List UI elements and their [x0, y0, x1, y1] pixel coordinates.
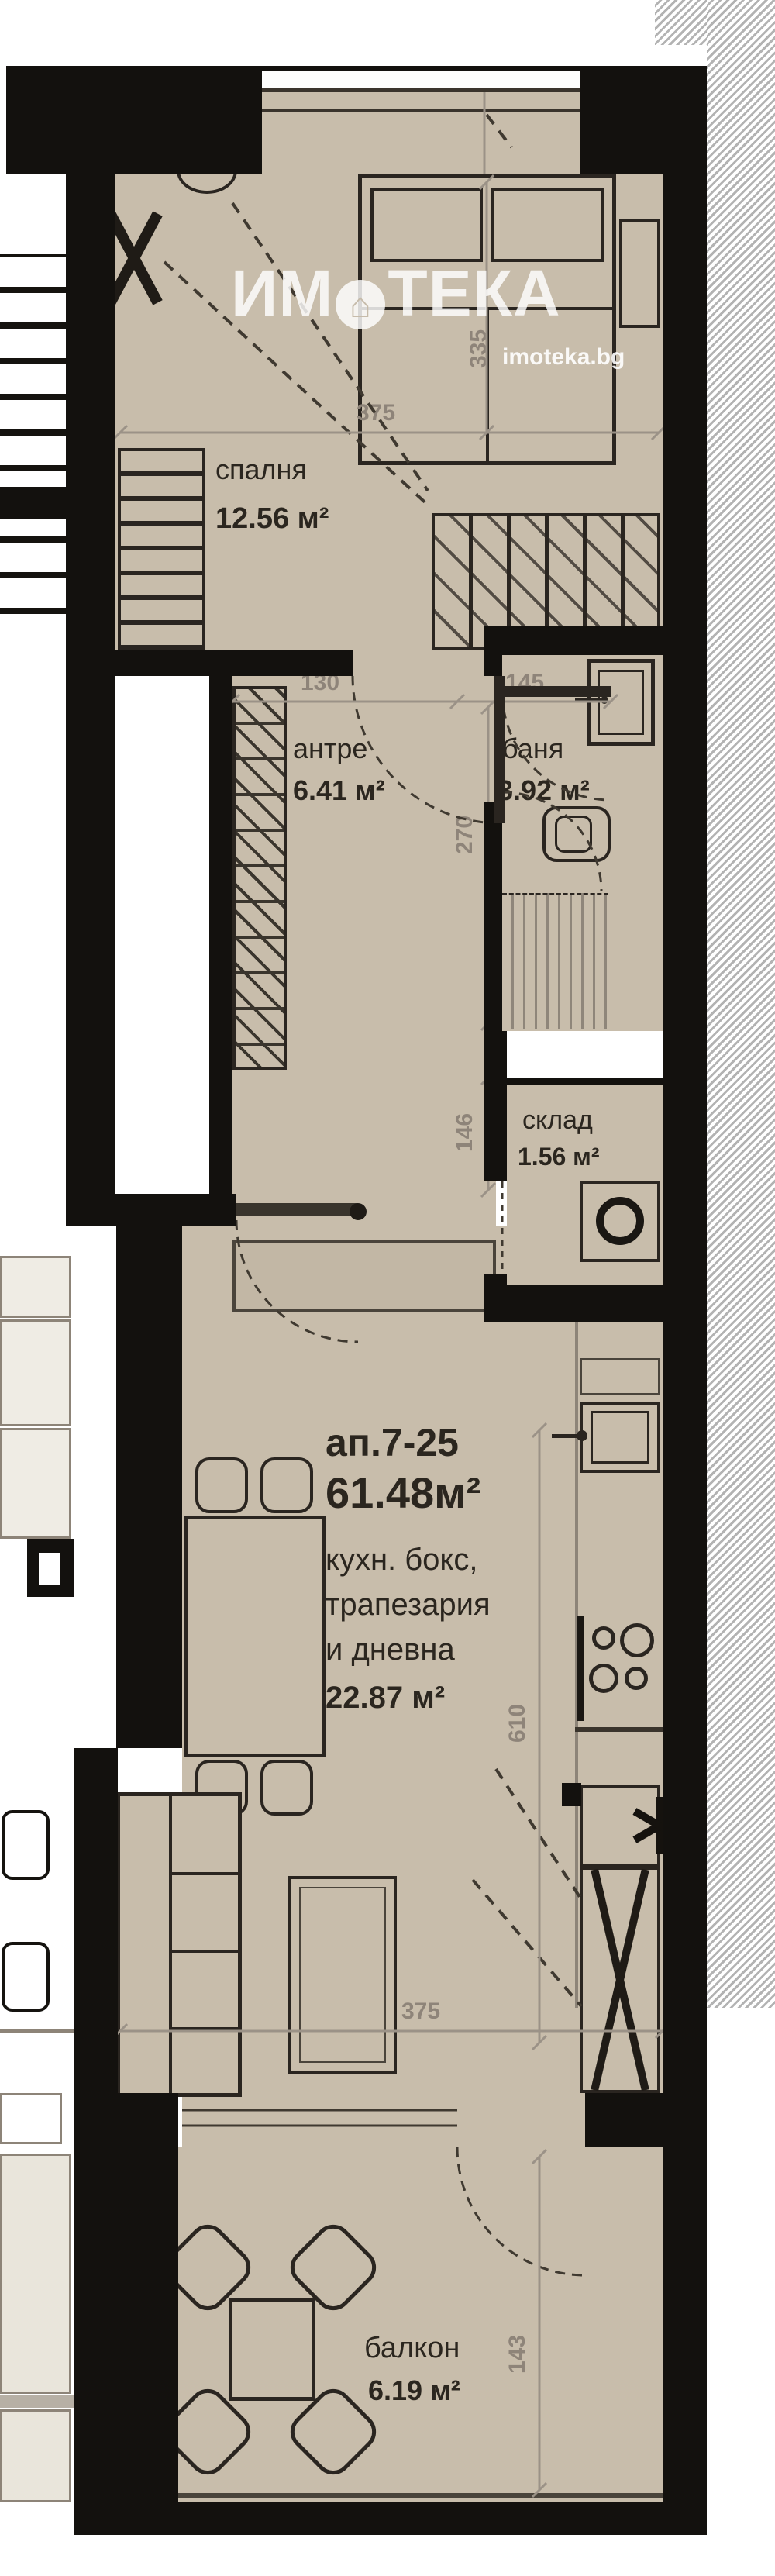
toilet-seat — [555, 816, 592, 853]
wall-balcony-left — [116, 2093, 178, 2535]
wall-left — [66, 174, 115, 1226]
neighbor-table — [0, 2093, 62, 2144]
wall-storage-top — [507, 1078, 663, 1085]
wall-stub — [562, 1783, 581, 1806]
balcony-table — [229, 2298, 315, 2401]
wall-storage-left-upper — [484, 1031, 507, 1181]
dining-table — [184, 1516, 325, 1757]
cooktop-burner — [589, 1664, 618, 1693]
cooktop-control-strip — [577, 1616, 584, 1721]
counter-divider — [575, 1727, 663, 1732]
brand-house-icon: ⌂ — [336, 280, 385, 329]
dining-chair — [260, 1760, 313, 1816]
shower-area — [502, 893, 608, 1029]
wall-bathroom-top — [484, 626, 707, 655]
neighbor-window-frame — [0, 1428, 71, 1539]
sink-drain-dot — [601, 696, 608, 704]
bedroom-door-gap — [353, 650, 502, 676]
kitchen-sink-inner — [591, 1411, 649, 1464]
wardrobe-with-hangers — [118, 448, 205, 650]
dim-bath-length: 270 — [453, 800, 477, 870]
sofa-back-line — [169, 1792, 172, 2097]
dim-balcony-depth: 143 — [506, 2319, 529, 2389]
wall-top-left — [6, 66, 262, 174]
wall-entrance — [66, 1194, 236, 1226]
cooktop-bur — [592, 1626, 615, 1650]
window-frame-line — [262, 88, 580, 92]
entry-cabinet — [232, 1240, 496, 1312]
wall-bathroom-left — [484, 802, 502, 1031]
bathroom-door-leaf — [502, 686, 611, 697]
hallway-label: антре — [293, 735, 367, 763]
staircase — [0, 254, 66, 633]
nightstand — [619, 219, 660, 328]
living-window-band — [182, 2093, 457, 2147]
living-area: 22.87 м² — [325, 1682, 445, 1713]
washing-machine-drum — [596, 1197, 644, 1245]
window-glass — [262, 71, 580, 88]
neighbor-balcony-panel — [0, 2154, 71, 2394]
unit-total-area: 61.48м² — [325, 1471, 480, 1515]
brand-site-watermark: imoteka.bg — [502, 344, 625, 371]
adjacent-structure-hatch-top — [655, 0, 707, 45]
neighbor-window-frame — [0, 1319, 71, 1426]
dim-living-width: 375 — [401, 2000, 440, 2023]
brand-watermark: ИМ⌂ТЕКА — [231, 256, 561, 331]
bedroom-area: 12.56 м² — [215, 504, 329, 533]
living-label-line1: кухн. бокс, — [325, 1544, 477, 1575]
cooktop-burner — [620, 1623, 654, 1657]
dim-living-length: 610 — [506, 1688, 529, 1758]
window-frame-line — [262, 109, 580, 112]
wall-balcony-bottom — [178, 2502, 707, 2535]
living-label-line2: трапезария — [325, 1589, 491, 1620]
neighbor-balcony-panel — [0, 2409, 71, 2502]
bathroom-area: 3.92 м² — [498, 777, 590, 805]
balcony-area: 6.19 м² — [368, 2377, 460, 2405]
sofa-cushion-line — [172, 1872, 242, 1875]
wall-storage-bottom — [484, 1285, 707, 1322]
unit-id: ап.7-25 — [325, 1423, 459, 1462]
wall-living-left-lower — [74, 1748, 118, 2535]
wall-hall-left — [209, 676, 232, 1226]
pillow — [370, 188, 483, 262]
adjacent-structure-hatch — [707, 0, 775, 2008]
kitchen-base-cabinet — [580, 1358, 660, 1395]
bathroom-label: баня — [502, 735, 563, 763]
storage-label: склад — [522, 1107, 593, 1133]
bedroom-label: спалня — [215, 456, 307, 484]
fridge — [580, 1785, 660, 1867]
sofa-cushion-line — [172, 1950, 242, 1953]
staircase-landing — [0, 487, 66, 519]
coffee-table-inner — [299, 1887, 386, 2063]
pillow — [491, 188, 604, 262]
balcony-door-gap — [457, 2093, 585, 2147]
neighbor-divider-line — [0, 2029, 74, 2033]
neighbor-chair — [2, 1942, 50, 2012]
neighbor-chair — [2, 1810, 50, 1880]
wall-right — [663, 174, 707, 2535]
wall-bathroom-left-top — [484, 655, 502, 676]
wall-living-left-upper — [116, 1226, 182, 1748]
wall-window-head — [262, 66, 580, 71]
wall-top-right — [580, 66, 707, 174]
dim-hall-length: 146 — [453, 1098, 477, 1167]
bedroom-door-leaf — [494, 676, 505, 823]
sink-tap-line — [575, 698, 601, 702]
storage-area: 1.56 м² — [518, 1144, 600, 1169]
sofa — [116, 1792, 242, 2097]
balcony-label: балкон — [364, 2333, 460, 2363]
hallway-area: 6.41 м² — [293, 777, 385, 805]
dining-chair — [195, 1457, 248, 1513]
floor-plan: спалня 12.56 м² антре 6.41 м² баня 3.92 … — [0, 0, 775, 2576]
entrance-door-leaf — [236, 1203, 358, 1216]
living-label-line3: и дневна — [325, 1634, 455, 1665]
entrance-door-hinge — [350, 1203, 367, 1220]
dim-bedroom-width: 375 — [356, 402, 395, 425]
neighbor-wall-corner-inner — [39, 1553, 60, 1585]
wall-living-bottom-right — [585, 2093, 663, 2147]
neighbor-window-frame — [0, 1256, 71, 1318]
cooktop-burner — [625, 1667, 648, 1690]
hall-closet — [232, 686, 287, 1070]
kitchen-tap-dot — [577, 1430, 587, 1441]
wall-bedroom-bottom — [115, 650, 353, 676]
sofa-cushion-line — [172, 2027, 242, 2030]
balcony-railing — [178, 2493, 663, 2498]
dining-chair — [260, 1457, 313, 1513]
